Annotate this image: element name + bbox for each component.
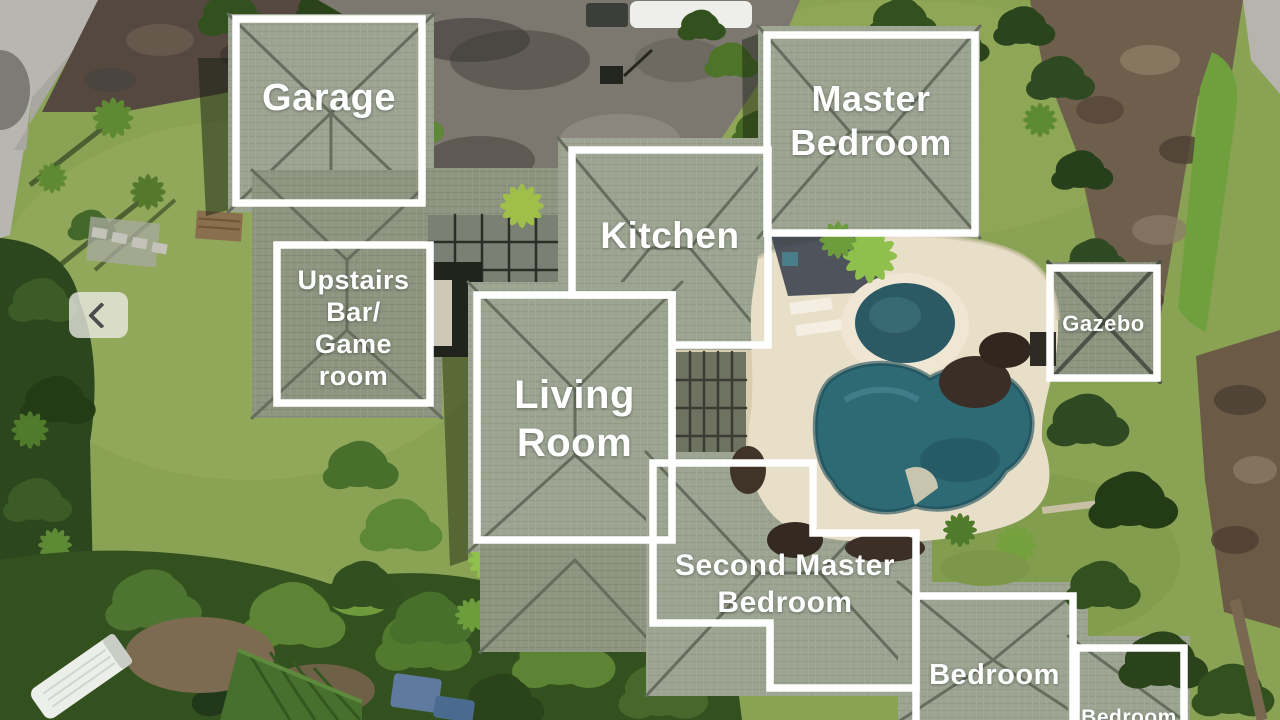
pool-area bbox=[730, 221, 1058, 562]
property-aerial-photo: Garage Master Bedroom Kitchen Upstairs B… bbox=[0, 0, 1280, 720]
gallery-previous-button[interactable] bbox=[69, 292, 128, 338]
chevron-left-icon bbox=[88, 302, 115, 329]
aerial-photo-illustration bbox=[0, 0, 1280, 720]
